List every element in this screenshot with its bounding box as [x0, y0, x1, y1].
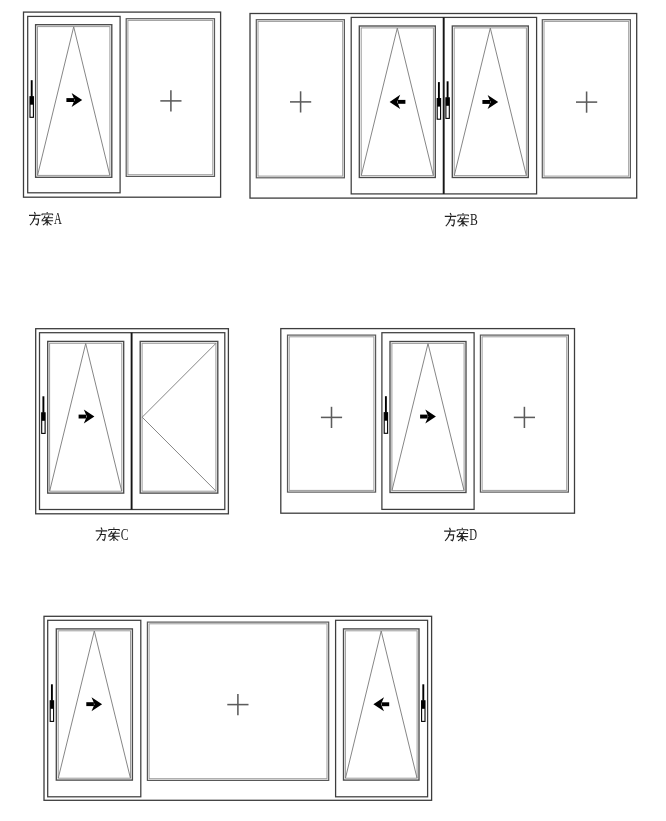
svg-text:A: A — [54, 208, 62, 228]
svg-text:C: C — [121, 524, 129, 544]
svg-text:B: B — [470, 209, 478, 229]
svg-text:D: D — [469, 524, 477, 544]
